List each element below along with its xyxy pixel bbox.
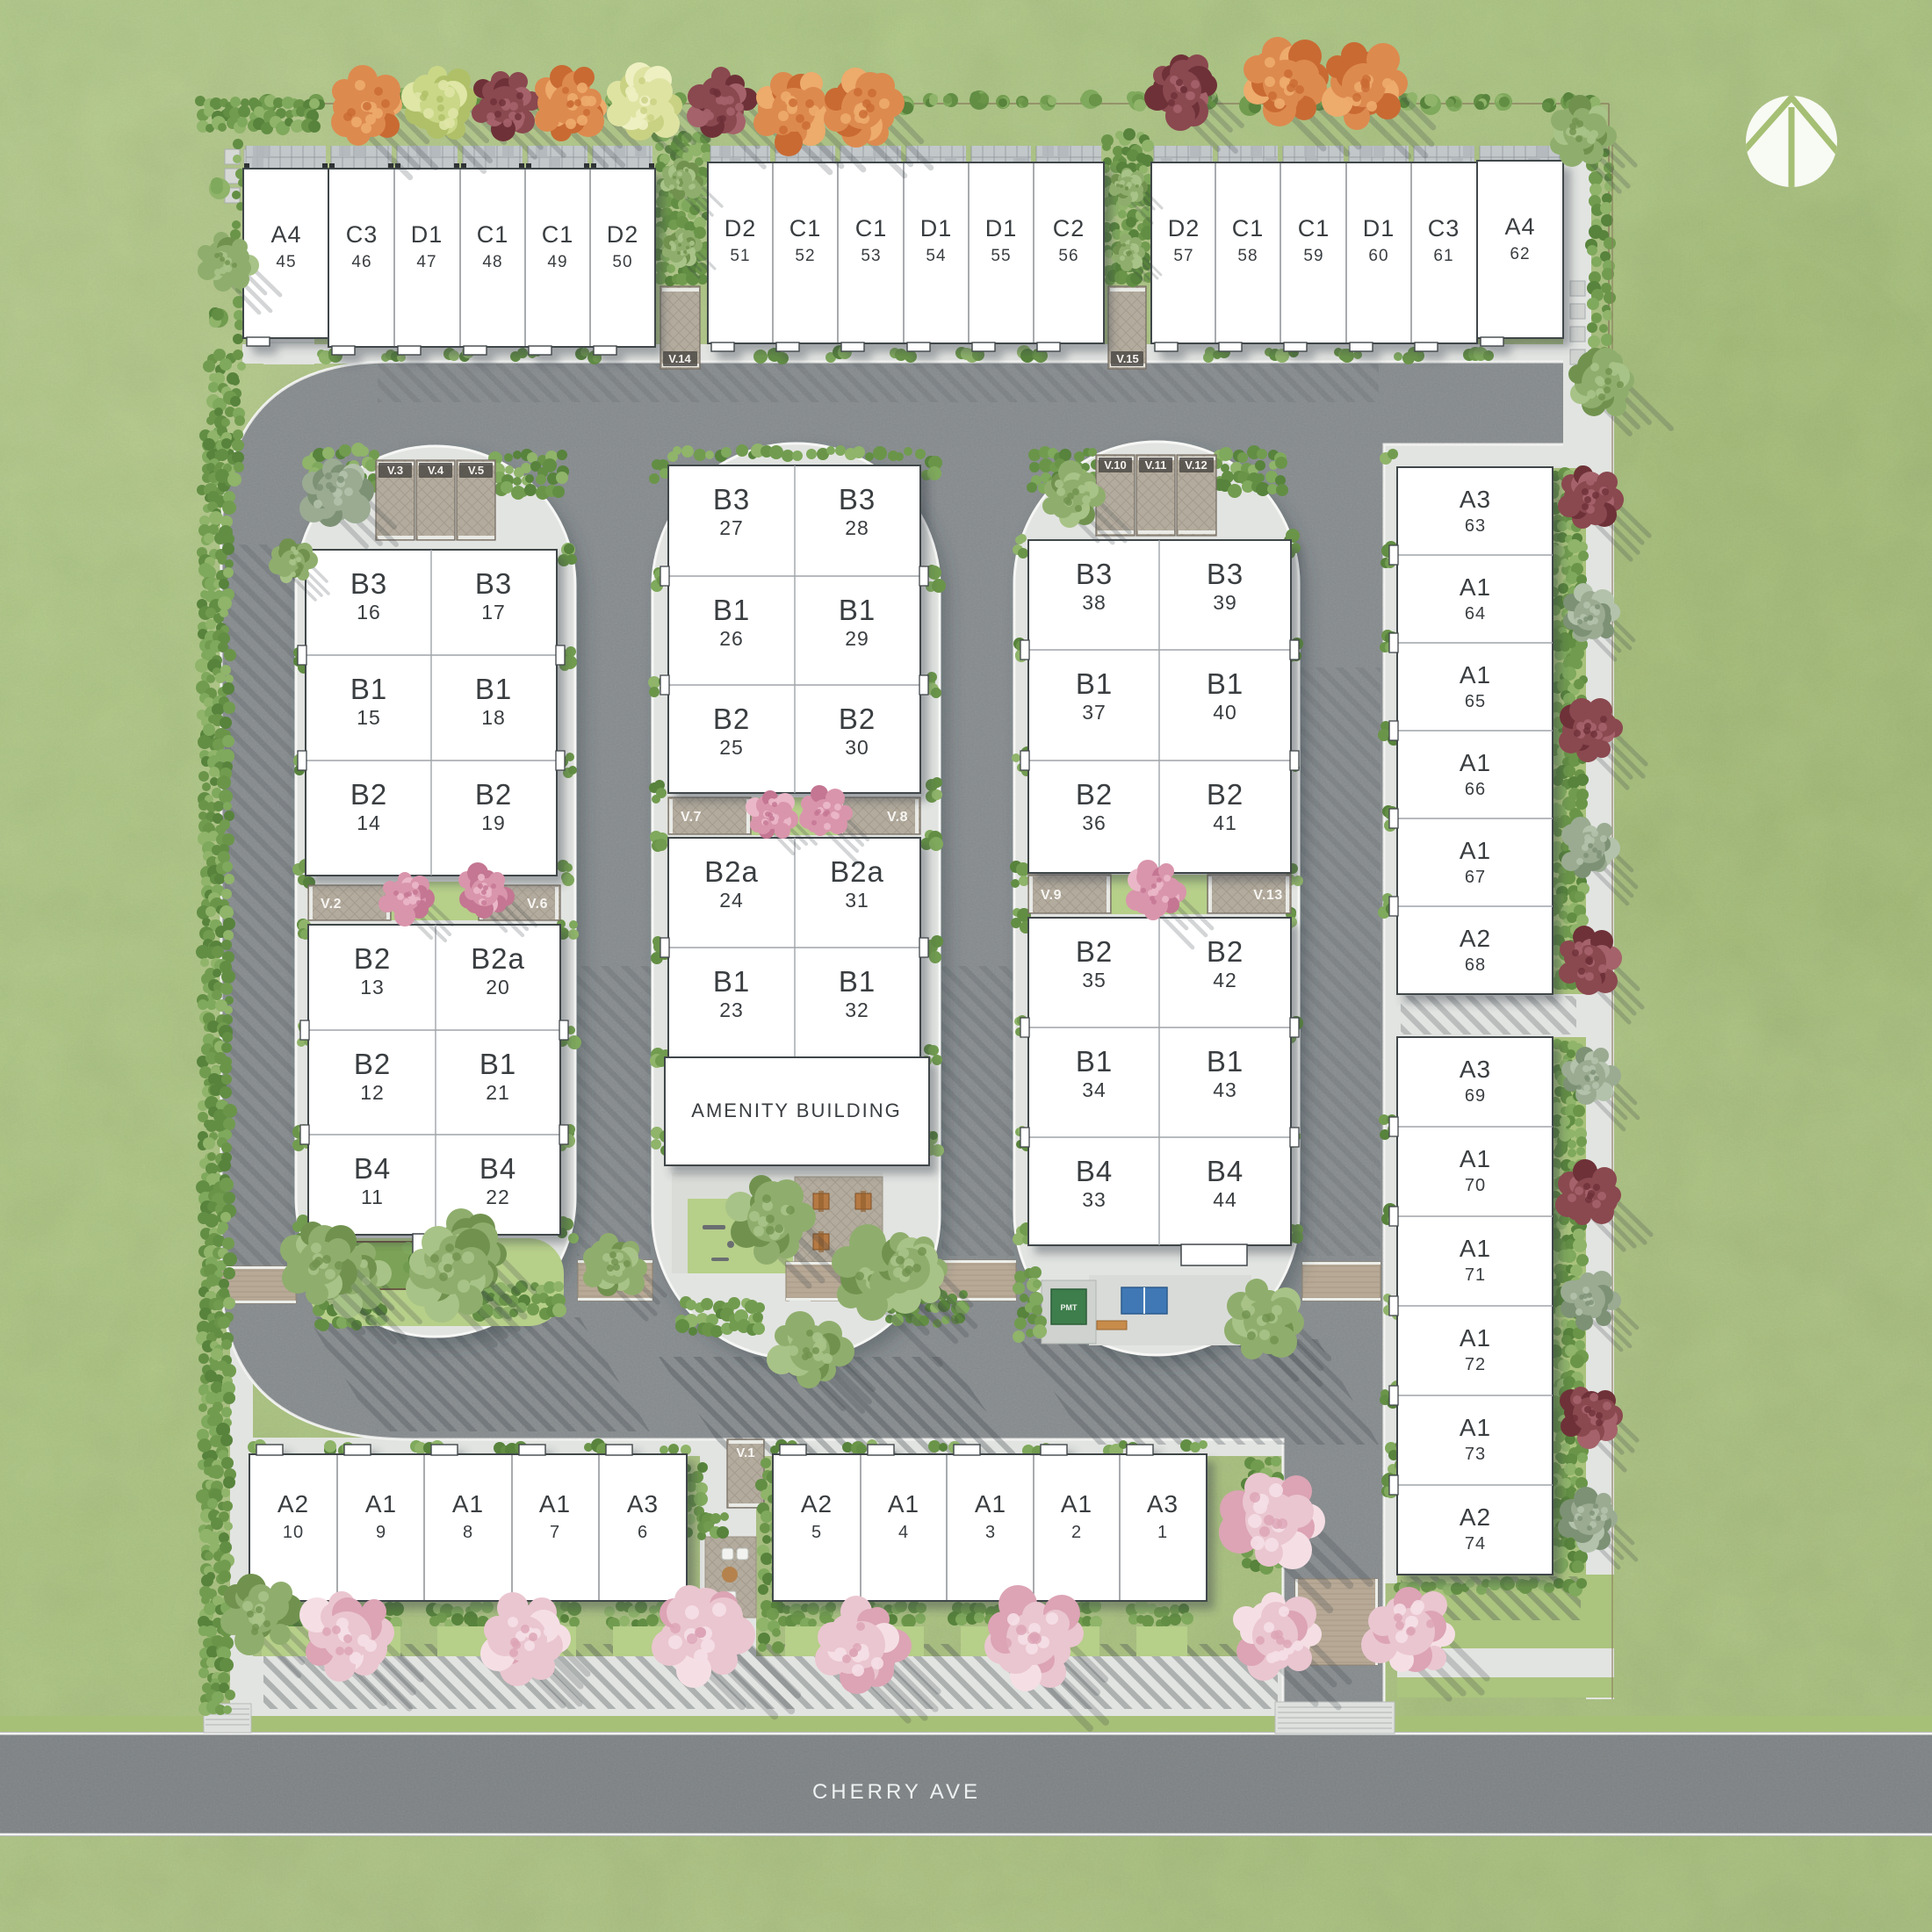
svg-text:65: 65	[1465, 692, 1486, 711]
svg-text:B1: B1	[1207, 667, 1244, 700]
svg-text:17: 17	[481, 601, 506, 624]
svg-text:D2: D2	[607, 221, 639, 248]
svg-text:64: 64	[1465, 604, 1486, 624]
svg-text:14: 14	[357, 811, 381, 834]
svg-text:V.4: V.4	[428, 464, 444, 477]
svg-text:A3: A3	[627, 1490, 659, 1517]
svg-text:B3: B3	[475, 567, 512, 600]
svg-text:C1: C1	[789, 215, 822, 241]
svg-text:V.5: V.5	[468, 464, 484, 477]
svg-text:V.11: V.11	[1145, 458, 1167, 472]
svg-text:B2: B2	[354, 1048, 391, 1080]
svg-text:73: 73	[1465, 1445, 1486, 1464]
svg-text:A1: A1	[1460, 573, 1491, 601]
svg-text:53: 53	[861, 247, 881, 265]
svg-text:16: 16	[357, 601, 381, 624]
svg-text:52: 52	[795, 247, 815, 265]
svg-text:D2: D2	[724, 215, 757, 241]
svg-text:74: 74	[1465, 1534, 1486, 1554]
svg-text:B3: B3	[1076, 558, 1113, 590]
svg-text:46: 46	[351, 253, 371, 271]
svg-text:21: 21	[486, 1081, 510, 1104]
svg-text:B4: B4	[1076, 1155, 1113, 1187]
svg-text:B2: B2	[713, 703, 750, 735]
svg-text:A2: A2	[1460, 925, 1491, 952]
svg-text:A1: A1	[1460, 1235, 1491, 1262]
svg-text:5: 5	[811, 1523, 822, 1542]
svg-text:B1: B1	[1076, 1045, 1113, 1078]
svg-text:C1: C1	[542, 221, 574, 248]
svg-text:CHERRY AVE: CHERRY AVE	[812, 1780, 981, 1804]
svg-text:C3: C3	[1428, 215, 1460, 241]
svg-text:39: 39	[1213, 591, 1237, 614]
svg-text:49: 49	[547, 253, 567, 271]
svg-text:A1: A1	[1460, 749, 1491, 776]
svg-text:B2: B2	[475, 778, 512, 811]
svg-text:61: 61	[1433, 247, 1453, 265]
svg-text:27: 27	[719, 516, 744, 539]
svg-text:70: 70	[1465, 1176, 1486, 1195]
svg-text:PMT: PMT	[1061, 1303, 1078, 1312]
svg-text:B3: B3	[1207, 558, 1244, 590]
svg-text:32: 32	[845, 998, 869, 1021]
svg-text:A1: A1	[1460, 661, 1491, 688]
svg-text:V.7: V.7	[681, 810, 702, 825]
svg-text:35: 35	[1082, 969, 1107, 991]
svg-text:A1: A1	[1460, 1324, 1491, 1352]
svg-text:B1: B1	[839, 965, 876, 998]
svg-text:60: 60	[1368, 247, 1388, 265]
svg-text:A3: A3	[1460, 486, 1491, 513]
svg-text:B2: B2	[1207, 935, 1244, 968]
svg-text:B4: B4	[354, 1152, 391, 1185]
svg-text:B2: B2	[1076, 778, 1113, 811]
svg-text:42: 42	[1213, 969, 1237, 991]
svg-text:62: 62	[1510, 245, 1530, 263]
svg-text:63: 63	[1465, 516, 1486, 536]
svg-text:B1: B1	[1076, 667, 1113, 700]
svg-text:A1: A1	[1061, 1490, 1092, 1517]
svg-text:B2: B2	[350, 778, 387, 811]
svg-text:3: 3	[985, 1523, 996, 1542]
svg-text:C1: C1	[1232, 215, 1265, 241]
svg-text:58: 58	[1237, 247, 1258, 265]
svg-text:41: 41	[1213, 811, 1237, 834]
svg-text:D1: D1	[985, 215, 1018, 241]
svg-text:66: 66	[1465, 780, 1486, 799]
svg-text:10: 10	[283, 1523, 304, 1542]
svg-text:B4: B4	[479, 1152, 516, 1185]
svg-text:26: 26	[719, 627, 744, 650]
svg-text:V.15: V.15	[1116, 352, 1139, 365]
svg-text:A1: A1	[1460, 1414, 1491, 1441]
svg-text:A4: A4	[1504, 213, 1535, 240]
svg-text:31: 31	[845, 889, 869, 912]
svg-text:AMENITY BUILDING: AMENITY BUILDING	[691, 1099, 901, 1121]
svg-text:25: 25	[719, 736, 744, 759]
svg-text:43: 43	[1213, 1078, 1237, 1101]
svg-text:D1: D1	[411, 221, 443, 248]
svg-text:D2: D2	[1168, 215, 1200, 241]
svg-text:B1: B1	[1207, 1045, 1244, 1078]
svg-text:B1: B1	[475, 673, 512, 705]
svg-text:V.3: V.3	[387, 464, 403, 477]
svg-text:69: 69	[1465, 1086, 1486, 1106]
svg-text:68: 68	[1465, 955, 1486, 975]
svg-text:B1: B1	[839, 594, 876, 626]
svg-text:A1: A1	[1460, 1145, 1491, 1172]
svg-text:A1: A1	[365, 1490, 397, 1517]
svg-text:67: 67	[1465, 868, 1486, 887]
svg-text:33: 33	[1082, 1188, 1107, 1211]
svg-text:44: 44	[1213, 1188, 1237, 1211]
svg-text:V.10: V.10	[1104, 458, 1127, 472]
svg-text:56: 56	[1058, 247, 1078, 265]
svg-text:47: 47	[416, 253, 436, 271]
svg-text:B3: B3	[839, 483, 876, 515]
svg-text:A1: A1	[888, 1490, 919, 1517]
svg-text:B3: B3	[350, 567, 387, 600]
svg-text:A3: A3	[1147, 1490, 1179, 1517]
svg-text:A2: A2	[801, 1490, 833, 1517]
svg-text:55: 55	[991, 247, 1011, 265]
svg-text:V.12: V.12	[1185, 458, 1207, 472]
svg-text:B1: B1	[713, 965, 750, 998]
svg-text:V.2: V.2	[321, 897, 342, 912]
svg-text:C1: C1	[855, 215, 888, 241]
svg-text:V.14: V.14	[668, 352, 691, 365]
svg-text:13: 13	[360, 976, 385, 998]
svg-text:59: 59	[1303, 247, 1323, 265]
svg-text:54: 54	[926, 247, 946, 265]
svg-text:B3: B3	[713, 483, 750, 515]
svg-text:C1: C1	[1298, 215, 1330, 241]
svg-text:18: 18	[481, 706, 506, 729]
svg-text:9: 9	[376, 1523, 386, 1542]
svg-text:V.1: V.1	[736, 1445, 754, 1460]
svg-text:50: 50	[612, 253, 632, 271]
svg-text:B2: B2	[1076, 935, 1113, 968]
svg-text:D1: D1	[1363, 215, 1395, 241]
svg-text:A3: A3	[1460, 1056, 1491, 1083]
svg-text:B1: B1	[479, 1048, 516, 1080]
svg-text:B2a: B2a	[704, 855, 759, 888]
svg-text:B2: B2	[839, 703, 876, 735]
svg-text:72: 72	[1465, 1355, 1486, 1374]
svg-text:6: 6	[638, 1523, 648, 1542]
svg-text:A1: A1	[1460, 837, 1491, 864]
svg-text:8: 8	[463, 1523, 473, 1542]
svg-text:24: 24	[719, 889, 744, 912]
svg-text:20: 20	[486, 976, 510, 998]
svg-text:A2: A2	[278, 1490, 309, 1517]
svg-text:34: 34	[1082, 1078, 1107, 1101]
svg-text:22: 22	[486, 1186, 510, 1208]
svg-text:V.13: V.13	[1253, 888, 1282, 903]
svg-text:V.6: V.6	[527, 897, 548, 912]
svg-text:48: 48	[482, 253, 502, 271]
svg-text:A4: A4	[270, 221, 301, 248]
svg-text:28: 28	[845, 516, 869, 539]
svg-text:19: 19	[481, 811, 506, 834]
svg-text:D1: D1	[920, 215, 953, 241]
svg-text:15: 15	[357, 706, 381, 729]
svg-text:B2a: B2a	[471, 942, 525, 975]
svg-text:38: 38	[1082, 591, 1107, 614]
svg-text:23: 23	[719, 998, 744, 1021]
svg-text:V.8: V.8	[887, 810, 908, 825]
svg-text:37: 37	[1082, 701, 1107, 724]
svg-text:30: 30	[845, 736, 869, 759]
svg-text:12: 12	[360, 1081, 385, 1104]
svg-text:11: 11	[361, 1186, 384, 1208]
svg-text:71: 71	[1465, 1265, 1486, 1285]
svg-text:A2: A2	[1460, 1503, 1491, 1531]
svg-text:1: 1	[1157, 1523, 1168, 1542]
svg-text:36: 36	[1082, 811, 1107, 834]
svg-text:7: 7	[550, 1523, 560, 1542]
svg-text:V.9: V.9	[1041, 888, 1062, 903]
svg-text:A1: A1	[452, 1490, 484, 1517]
svg-text:C3: C3	[346, 221, 378, 248]
svg-text:51: 51	[730, 247, 750, 265]
svg-text:57: 57	[1173, 247, 1193, 265]
svg-text:B1: B1	[713, 594, 750, 626]
svg-text:40: 40	[1213, 701, 1237, 724]
svg-text:A1: A1	[539, 1490, 571, 1517]
svg-text:B4: B4	[1207, 1155, 1244, 1187]
svg-text:C1: C1	[477, 221, 509, 248]
svg-text:C2: C2	[1053, 215, 1085, 241]
svg-text:B2: B2	[1207, 778, 1244, 811]
svg-text:B2: B2	[354, 942, 391, 975]
svg-text:4: 4	[898, 1523, 909, 1542]
svg-text:2: 2	[1071, 1523, 1082, 1542]
svg-text:A1: A1	[975, 1490, 1006, 1517]
svg-text:B1: B1	[350, 673, 387, 705]
svg-text:45: 45	[276, 253, 296, 271]
svg-text:29: 29	[845, 627, 869, 650]
